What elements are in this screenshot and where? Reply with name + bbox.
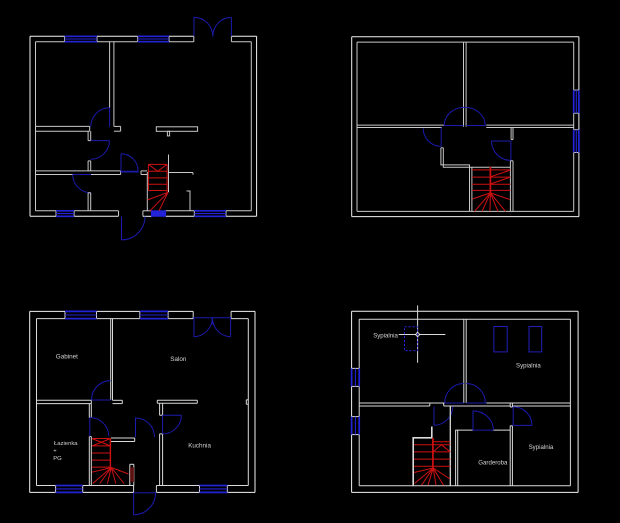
svg-text:Gabinet: Gabinet (56, 354, 78, 361)
svg-text:Sypialnia: Sypialnia (529, 444, 554, 451)
svg-text:Garderoba: Garderoba (478, 459, 508, 466)
svg-text:Sypialnia: Sypialnia (373, 332, 398, 339)
svg-text:+: + (53, 449, 57, 455)
svg-text:PG: PG (53, 456, 62, 462)
svg-text:Sypialnia: Sypialnia (516, 363, 541, 370)
svg-text:Salon: Salon (170, 356, 187, 363)
svg-text:Łazienka: Łazienka (54, 441, 78, 447)
svg-text:Kuchnia: Kuchnia (188, 443, 211, 450)
